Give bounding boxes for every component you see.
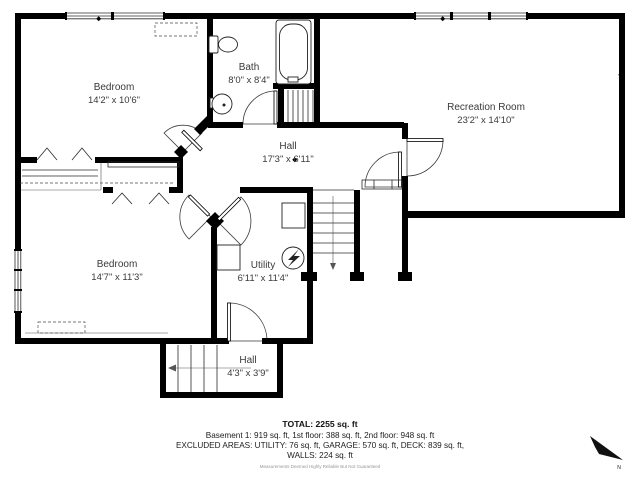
summary-excluded: EXCLUDED AREAS: UTILITY: 76 sq. ft, GARA… — [176, 441, 464, 450]
floor-plan-page: Bedroom 14'2" x 10'6" Bath 8'0" x 8'4" R… — [0, 0, 640, 480]
bifold-door-icon — [37, 148, 57, 160]
summary-disclaimer: Measurements Deemed Highly Reliable But … — [260, 464, 381, 469]
room-dims-bedroom1: 14'2" x 10'6" — [88, 95, 140, 106]
area-summary: TOTAL: 2255 sq. ft Basement 1: 919 sq. f… — [176, 419, 464, 469]
walls — [15, 13, 625, 398]
room-dims-bath: 8'0" x 8'4" — [228, 75, 270, 86]
room-label-bedroom2: Bedroom — [97, 259, 138, 270]
sink-icon — [210, 94, 232, 114]
room-dims-hall: 17'3" x 6'11" — [262, 154, 313, 165]
summary-walls: WALLS: 224 sq. ft — [287, 451, 353, 460]
room-labels: Bedroom 14'2" x 10'6" Bath 8'0" x 8'4" R… — [88, 62, 525, 379]
room-label-bedroom1: Bedroom — [94, 82, 135, 93]
room-label-utility: Utility — [251, 260, 275, 271]
closets — [20, 23, 197, 333]
stairs-upper — [288, 90, 313, 122]
room-label-hall: Hall — [279, 141, 296, 152]
compass: N — [590, 436, 623, 471]
shelf-icon — [217, 245, 240, 270]
north-arrow-icon — [590, 436, 623, 460]
room-label-recreation: Recreation Room — [447, 102, 525, 113]
bifold-door-icon — [72, 148, 92, 160]
bifold-door-icon — [112, 193, 132, 204]
room-dims-recreation: 23'2" x 14'10" — [457, 115, 514, 126]
floor-plan-drawing: Bedroom 14'2" x 10'6" Bath 8'0" x 8'4" R… — [0, 0, 640, 480]
summary-total: TOTAL: 2255 sq. ft — [282, 419, 357, 429]
stairs-down-arrow-icon — [168, 365, 176, 372]
summary-floors: Basement 1: 919 sq. ft, 1st floor: 388 s… — [206, 431, 435, 440]
room-label-bath: Bath — [239, 62, 260, 73]
north-label: N — [617, 465, 621, 471]
stairs-down-arrow-icon — [330, 263, 336, 270]
water-heater-icon — [282, 203, 305, 228]
room-label-hall2: Hall — [239, 355, 256, 366]
recreation-room-window — [414, 12, 528, 20]
bedroom1-window — [65, 12, 165, 20]
room-dims-bedroom2: 14'7" x 11'3" — [91, 272, 142, 283]
room-dims-utility: 6'11" x 11'4" — [238, 273, 289, 284]
toilet-icon — [209, 36, 238, 53]
room-dims-hall2: 4'3" x 3'9" — [227, 368, 269, 379]
bifold-door-icon — [149, 193, 169, 204]
bedroom2-window — [14, 249, 22, 313]
furnace-icon — [282, 247, 304, 269]
bathtub-icon — [276, 20, 311, 84]
